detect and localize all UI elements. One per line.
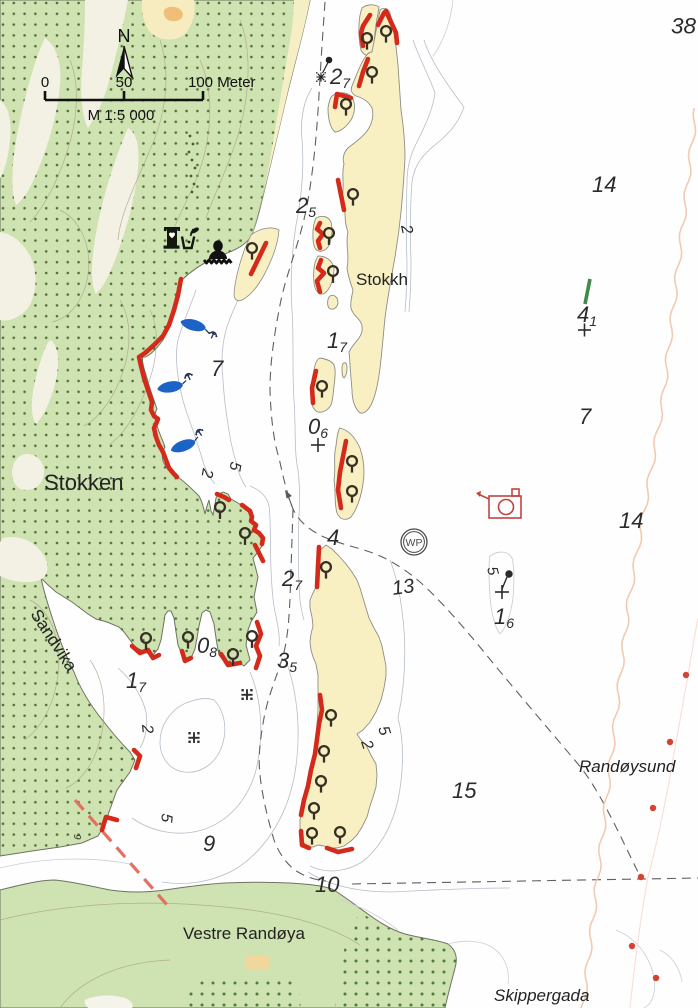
svg-text:13: 13 bbox=[391, 575, 416, 600]
svg-text:15: 15 bbox=[452, 778, 477, 803]
svg-text:38: 38 bbox=[671, 14, 697, 39]
svg-text:M 1:5 000: M 1:5 000 bbox=[88, 107, 155, 124]
svg-text:Skippergada: Skippergada bbox=[494, 986, 589, 1005]
svg-text:Stokken: Stokken bbox=[44, 470, 124, 495]
svg-text:4: 4 bbox=[327, 525, 339, 550]
svg-text:N: N bbox=[118, 26, 131, 46]
svg-text:Stokkh: Stokkh bbox=[356, 270, 408, 289]
svg-text:7: 7 bbox=[211, 356, 224, 381]
svg-text:14: 14 bbox=[619, 508, 643, 533]
svg-text:WP: WP bbox=[406, 537, 423, 549]
svg-text:100 Meter: 100 Meter bbox=[188, 74, 256, 91]
svg-text:5: 5 bbox=[157, 813, 175, 823]
svg-text:Vestre Randøya: Vestre Randøya bbox=[183, 924, 305, 943]
svg-text:9: 9 bbox=[203, 831, 215, 856]
svg-text:14: 14 bbox=[592, 172, 616, 197]
svg-text:2: 2 bbox=[138, 723, 156, 734]
svg-text:0: 0 bbox=[41, 74, 49, 91]
svg-text:10: 10 bbox=[315, 872, 340, 897]
svg-text:Randøysund: Randøysund bbox=[579, 757, 676, 776]
svg-text:7: 7 bbox=[579, 404, 592, 429]
svg-text:9: 9 bbox=[71, 834, 82, 840]
svg-text:50: 50 bbox=[116, 74, 133, 91]
